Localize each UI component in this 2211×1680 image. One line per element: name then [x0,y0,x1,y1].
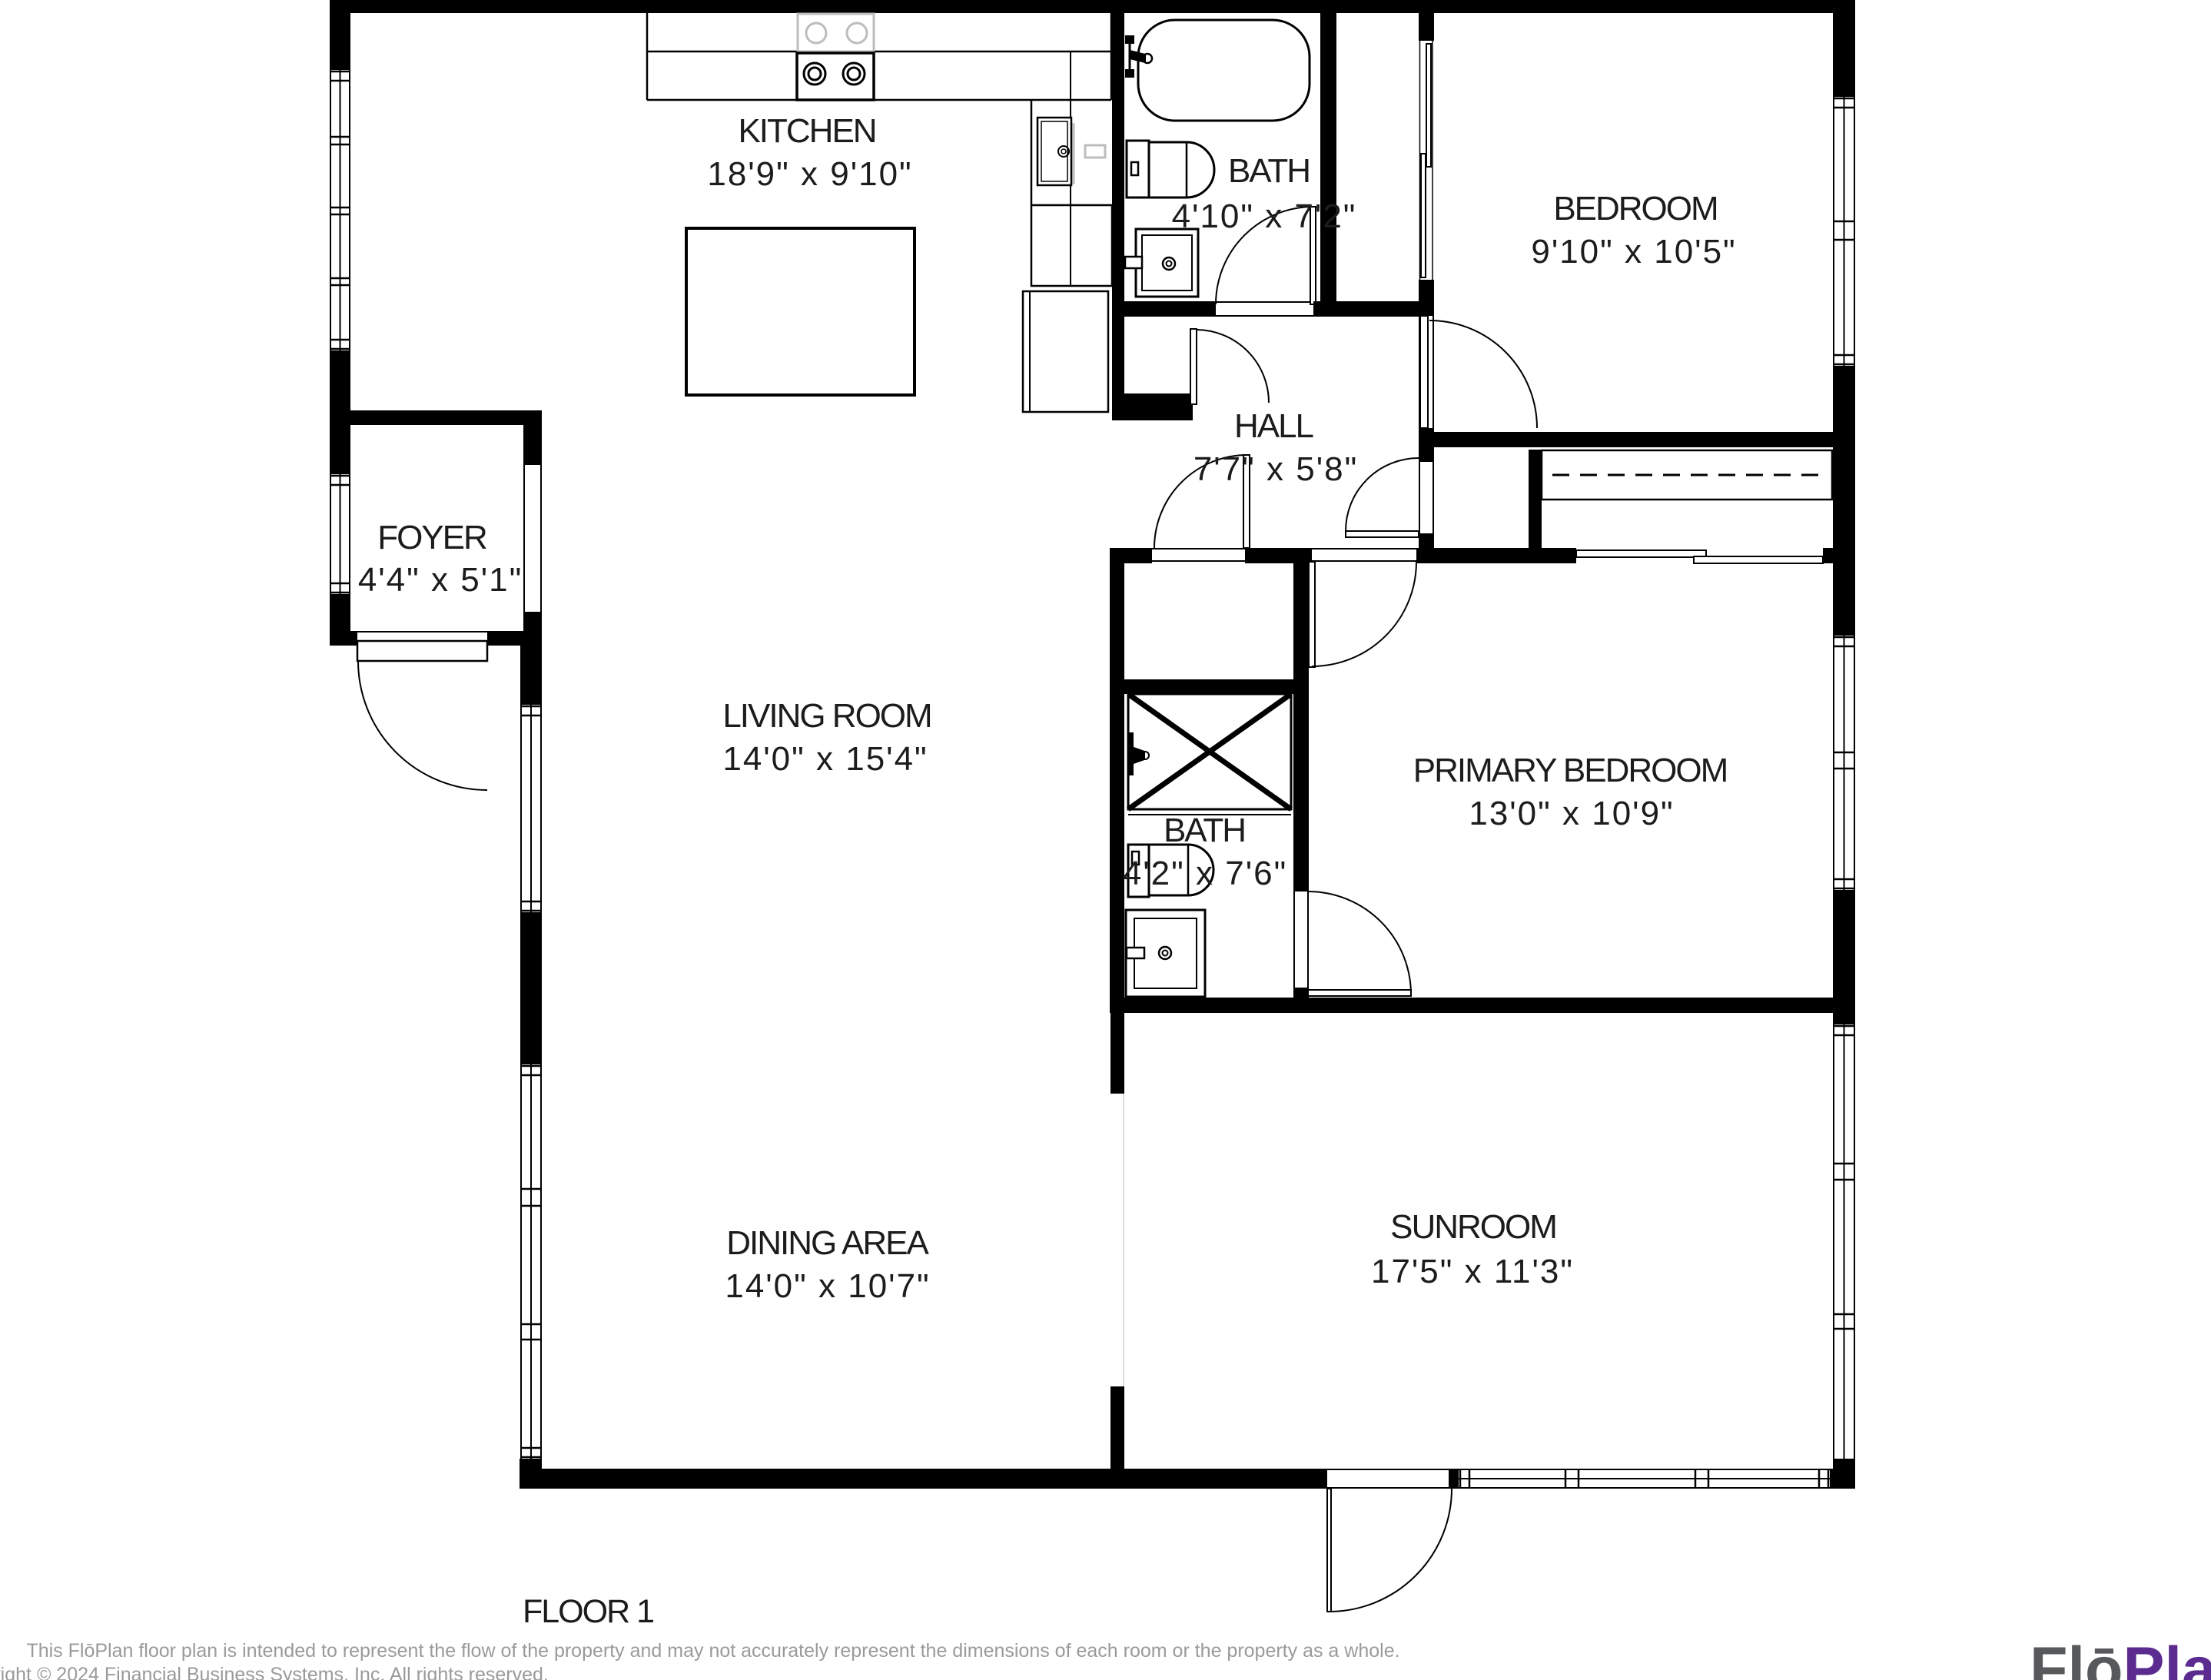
svg-text:DINING AREA: DINING AREA [726,1224,929,1262]
svg-text:BATH: BATH [1228,152,1310,190]
svg-text:4'2" x 7'6": 4'2" x 7'6" [1123,855,1287,892]
svg-text:KITCHEN: KITCHEN [738,112,875,150]
svg-text:7'7" x 5'8": 7'7" x 5'8" [1193,450,1358,488]
svg-text:PRIMARY BEDROOM: PRIMARY BEDROOM [1413,752,1727,789]
svg-text:FOYER: FOYER [377,519,486,556]
svg-text:SUNROOM: SUNROOM [1390,1208,1556,1246]
svg-text:13'0" x 10'9": 13'0" x 10'9" [1469,795,1674,832]
svg-text:FlōPlan: FlōPlan [2030,1635,2211,1680]
svg-text:17'5" x 11'3": 17'5" x 11'3" [1371,1253,1574,1290]
svg-text:BATH: BATH [1164,812,1245,849]
svg-text:14'0" x 10'7": 14'0" x 10'7" [725,1267,930,1305]
svg-text:Copyright © 2024 Financial Bus: Copyright © 2024 Financial Business Syst… [0,1664,549,1680]
svg-text:4'10" x 7'2": 4'10" x 7'2" [1172,198,1357,235]
svg-text:4'4" x 5'1": 4'4" x 5'1" [358,561,523,599]
svg-text:BEDROOM: BEDROOM [1553,190,1717,227]
svg-text:HALL: HALL [1234,407,1314,445]
svg-text:This FlōPlan floor plan is int: This FlōPlan floor plan is intended to r… [26,1640,1399,1662]
svg-text:FLOOR 1: FLOOR 1 [523,1593,653,1630]
svg-text:LIVING ROOM: LIVING ROOM [722,697,931,735]
svg-text:18'9" x 9'10": 18'9" x 9'10" [707,155,912,193]
svg-text:9'10" x 10'5": 9'10" x 10'5" [1531,233,1736,271]
svg-text:14'0" x 15'4": 14'0" x 15'4" [722,740,928,778]
